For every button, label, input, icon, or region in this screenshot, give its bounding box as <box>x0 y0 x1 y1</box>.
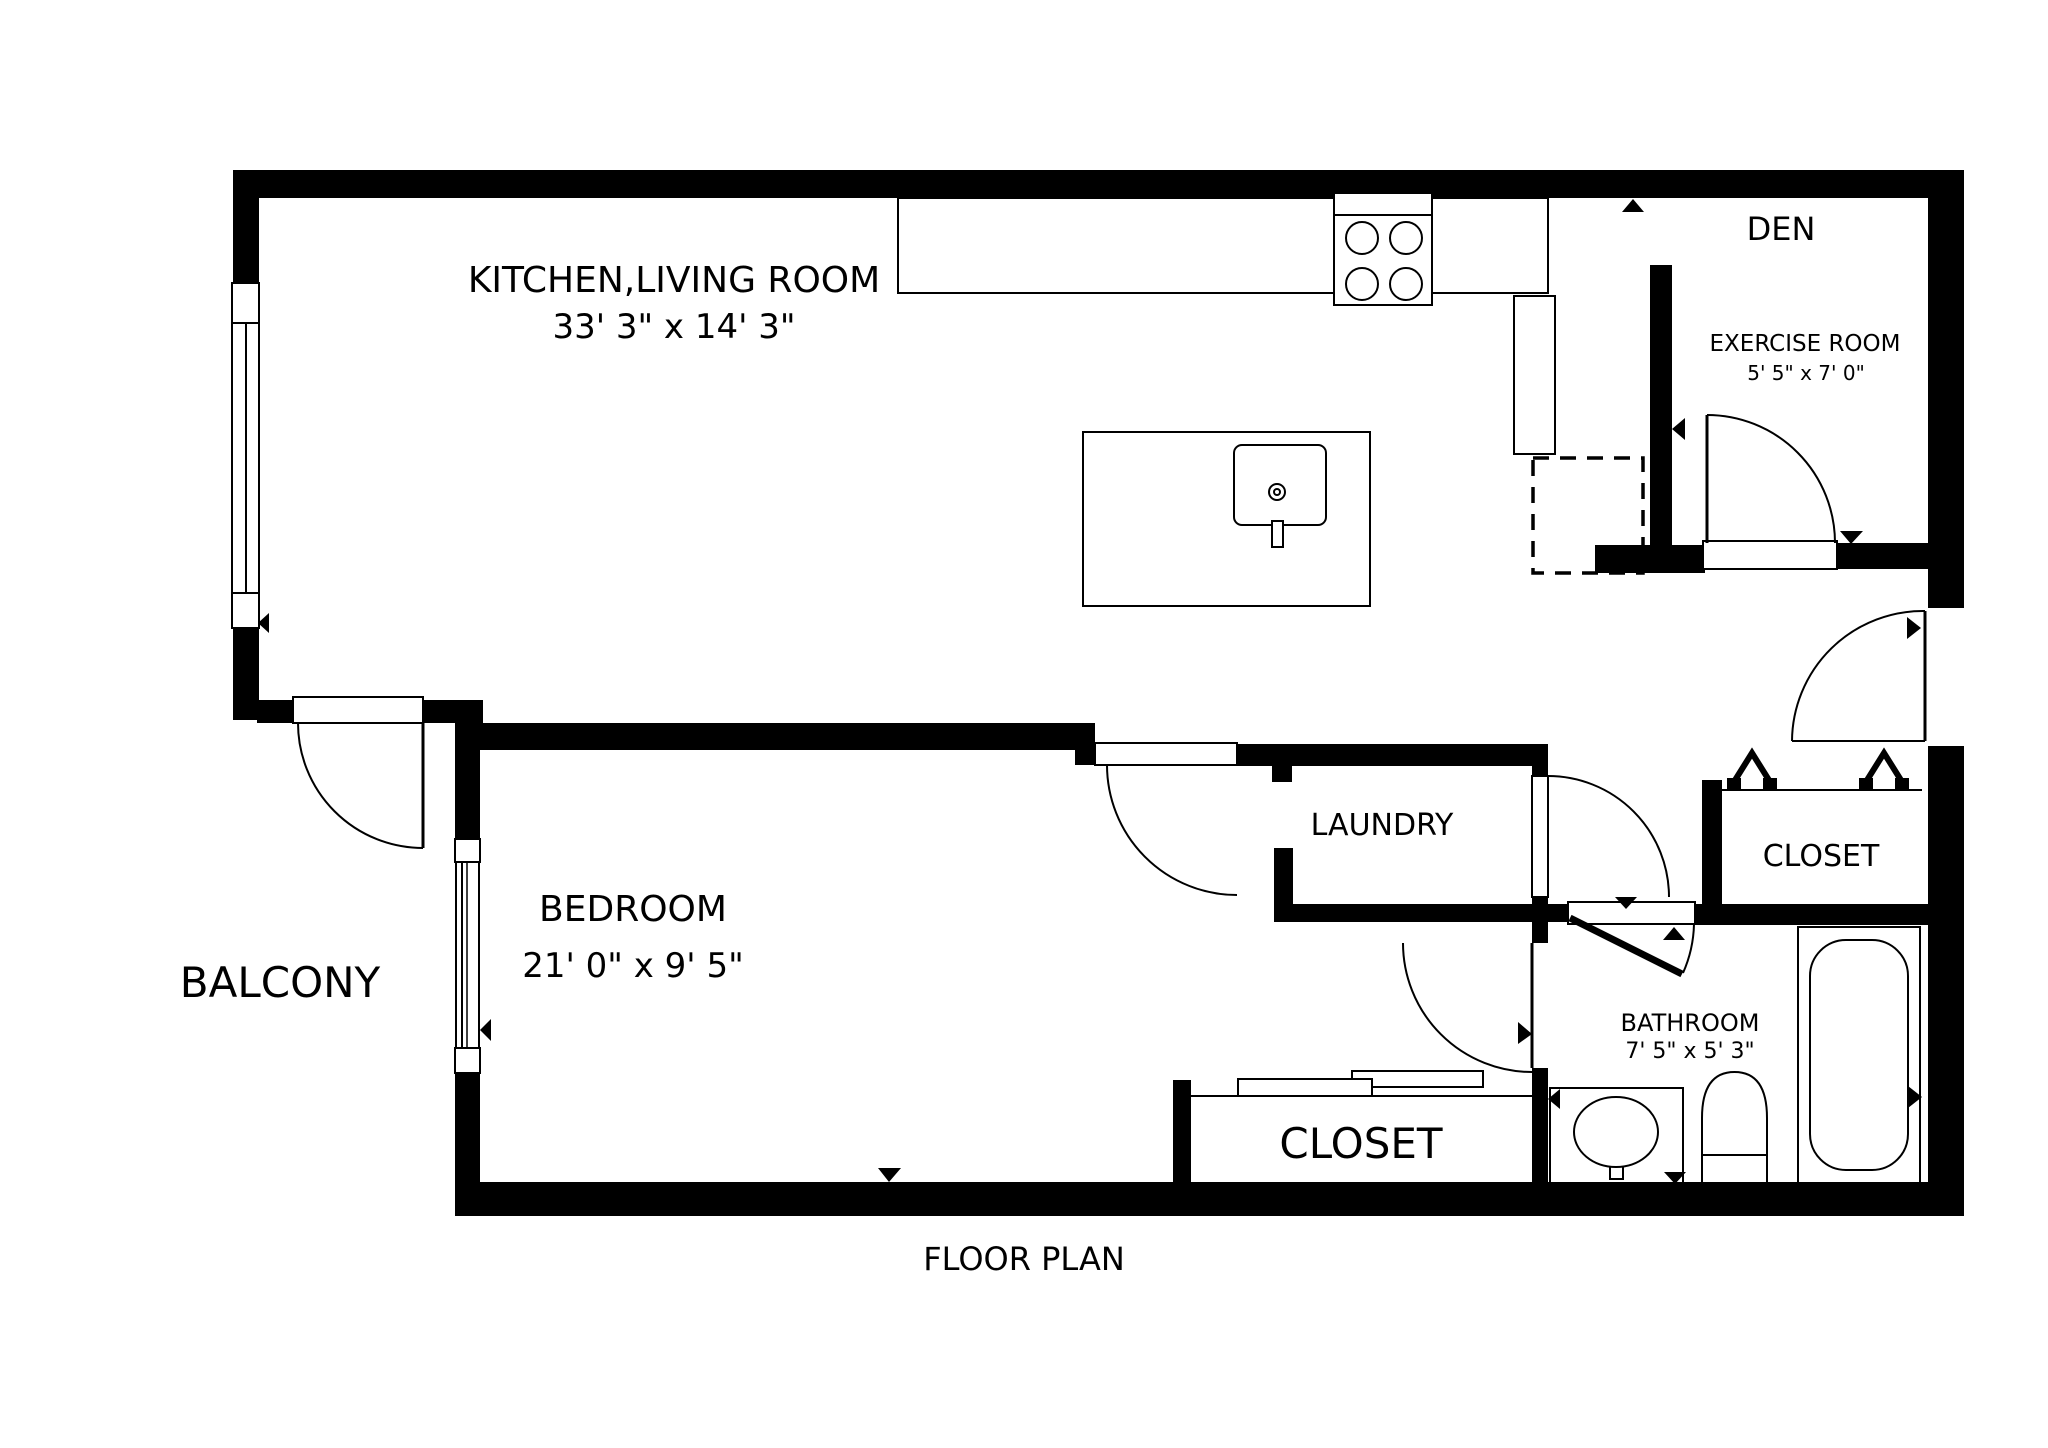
wall-right-wall-lower <box>1928 742 1964 1216</box>
bedroom-door-opening <box>1095 743 1237 765</box>
br-window-cap-top <box>455 839 480 862</box>
wall-midwall-west <box>257 700 293 723</box>
wall-laundry-top-wall <box>1237 744 1548 766</box>
room-label-den: DEN <box>1747 210 1816 248</box>
room-label-exercise-room: EXERCISE ROOM <box>1710 331 1901 357</box>
room-dims-bathroom: 7' 5" x 5' 3" <box>1625 1039 1754 1064</box>
lr-window-cap-bottom <box>232 593 259 628</box>
bathroom-door-opening <box>1568 902 1695 924</box>
wall-bedroom-left-wall-lower <box>455 1073 480 1182</box>
wall-bedroom-left-wall-upper <box>455 723 480 839</box>
br-window-cap-bottom <box>455 1048 480 1073</box>
wall-midwall-balcony-east <box>423 700 483 723</box>
wall-left-wall-lower <box>233 628 259 720</box>
wall-closet-bedroom-left-wall <box>1173 1080 1191 1182</box>
wall-left-wall-upper <box>233 170 259 283</box>
stove-burner-4 <box>1390 268 1422 300</box>
wall-hall-west-wall-lower <box>1532 1068 1548 1182</box>
kitchen-counter <box>898 198 1548 293</box>
wall-laundry-right-wall-top <box>1532 766 1548 776</box>
room-label-kitchen-living: KITCHEN,LIVING ROOM <box>468 260 880 301</box>
island-sink-stem <box>1272 521 1283 547</box>
room-dims-exercise-room: 5' 5" x 7' 0" <box>1747 361 1865 385</box>
lr-window-cap-top <box>232 283 259 323</box>
room-label-balcony: BALCONY <box>180 958 381 1007</box>
room-dims-kitchen-living: 33' 3" x 14' 3" <box>552 307 795 347</box>
wall-den-left-wall <box>1650 265 1672 545</box>
wall-bottom-wall <box>455 1182 1964 1216</box>
wall-right-wall-upper <box>1928 170 1964 612</box>
bifold-foot-2 <box>1859 778 1873 791</box>
toilet <box>1702 1072 1767 1183</box>
wall-laundry-left-stub <box>1272 766 1292 782</box>
room-dims-bedroom: 21' 0" x 9' 5" <box>522 946 743 986</box>
room-label-bathroom: BATHROOM <box>1621 1009 1760 1037</box>
room-label-laundry: LAUNDRY <box>1311 808 1454 843</box>
plan-caption: FLOOR PLAN <box>923 1240 1125 1278</box>
island-faucet-inner <box>1274 489 1280 495</box>
bath-sink-bowl <box>1574 1097 1658 1167</box>
bifold-foot-0 <box>1727 778 1741 791</box>
room-label-closet-hall: CLOSET <box>1763 839 1880 874</box>
room-label-bedroom: BEDROOM <box>539 889 727 930</box>
bifold-foot-3 <box>1895 778 1909 791</box>
wall-hall-west-wall-upper <box>1532 897 1548 943</box>
stove-burner-3 <box>1346 268 1378 300</box>
wall-bedroom-top-wall <box>455 723 1095 750</box>
exercise-door-opening <box>1703 541 1837 569</box>
slide-door-lower <box>1238 1079 1372 1096</box>
wall-bedroom-door-jamb <box>1075 723 1095 765</box>
entry-door-cut <box>1928 608 1964 746</box>
stove-burner-2 <box>1390 222 1422 254</box>
tub-inner <box>1810 940 1908 1170</box>
wall-laundry-bottom-wall <box>1274 904 1570 922</box>
wall-closet-hall-left-wall <box>1702 780 1722 908</box>
bifold-foot-1 <box>1763 778 1777 791</box>
wall-bathroom-top-wall <box>1695 904 1928 925</box>
room-label-closet-bedroom: CLOSET <box>1279 1119 1442 1168</box>
floor-plan-page: KITCHEN,LIVING ROOM33' 3" x 14' 3"DENEXE… <box>0 0 2048 1448</box>
floor-plan-drawing: KITCHEN,LIVING ROOM33' 3" x 14' 3"DENEXE… <box>0 0 2048 1448</box>
counter-return <box>1514 296 1555 454</box>
stove-burner-1 <box>1346 222 1378 254</box>
wall-den-hall-wall <box>1595 545 1705 573</box>
laundry-door-panel <box>1532 776 1548 897</box>
balcony-door-opening <box>293 697 423 723</box>
wall-top-wall <box>235 170 1964 198</box>
